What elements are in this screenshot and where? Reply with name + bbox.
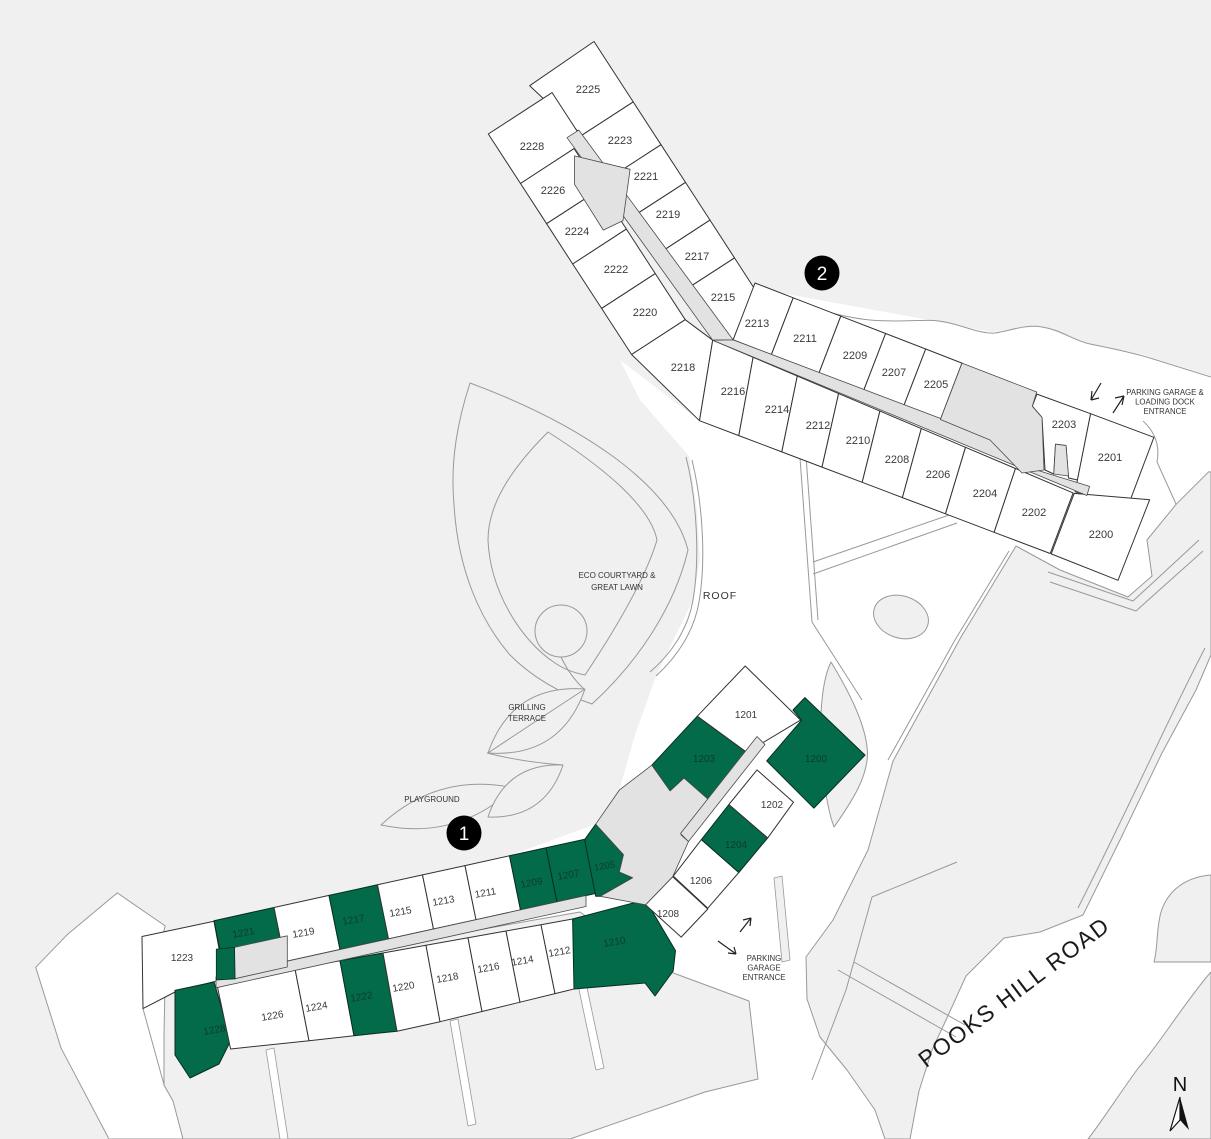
svg-text:1202: 1202 xyxy=(761,800,784,811)
svg-text:2221: 2221 xyxy=(634,171,658,183)
svg-text:2202: 2202 xyxy=(1022,507,1046,519)
svg-text:N: N xyxy=(1173,1074,1187,1096)
svg-text:2209: 2209 xyxy=(843,350,867,362)
svg-text:1206: 1206 xyxy=(690,876,713,887)
svg-text:GRILLING: GRILLING xyxy=(508,703,545,712)
svg-text:LOADING DOCK: LOADING DOCK xyxy=(1135,398,1196,407)
svg-text:1204: 1204 xyxy=(725,840,748,851)
svg-text:2204: 2204 xyxy=(973,488,997,500)
svg-text:2203: 2203 xyxy=(1052,419,1076,431)
svg-text:2211: 2211 xyxy=(793,333,817,345)
svg-text:1: 1 xyxy=(459,824,470,845)
svg-text:2208: 2208 xyxy=(885,454,909,466)
svg-text:PLAYGROUND: PLAYGROUND xyxy=(404,795,460,804)
svg-text:1223: 1223 xyxy=(171,953,194,964)
svg-text:2206: 2206 xyxy=(926,469,950,481)
svg-text:2220: 2220 xyxy=(633,307,657,319)
svg-text:2218: 2218 xyxy=(671,362,695,374)
svg-text:2214: 2214 xyxy=(765,404,789,416)
svg-text:2207: 2207 xyxy=(882,367,906,379)
svg-text:1203: 1203 xyxy=(693,754,716,765)
svg-text:2215: 2215 xyxy=(711,292,735,304)
svg-text:ROOF: ROOF xyxy=(703,590,737,602)
svg-text:GREAT LAWN: GREAT LAWN xyxy=(591,583,643,592)
svg-text:2224: 2224 xyxy=(565,226,589,238)
svg-text:ENTRANCE: ENTRANCE xyxy=(743,973,786,982)
svg-text:ECO COURTYARD &: ECO COURTYARD & xyxy=(578,571,656,580)
svg-text:PARKING GARAGE &: PARKING GARAGE & xyxy=(1126,388,1204,397)
svg-text:1200: 1200 xyxy=(805,754,828,765)
svg-text:2210: 2210 xyxy=(846,435,870,447)
svg-text:2200: 2200 xyxy=(1089,529,1113,541)
svg-text:GARAGE: GARAGE xyxy=(747,964,780,973)
svg-text:2226: 2226 xyxy=(541,185,565,197)
svg-text:2223: 2223 xyxy=(608,135,632,147)
svg-text:2216: 2216 xyxy=(721,386,745,398)
svg-text:2205: 2205 xyxy=(924,379,948,391)
svg-text:2201: 2201 xyxy=(1098,452,1122,464)
svg-text:2: 2 xyxy=(817,264,828,285)
svg-text:2225: 2225 xyxy=(576,84,600,96)
svg-text:2219: 2219 xyxy=(656,209,680,221)
svg-text:2217: 2217 xyxy=(685,251,709,263)
svg-text:TERRACE: TERRACE xyxy=(508,714,546,723)
svg-text:1208: 1208 xyxy=(657,909,680,920)
svg-text:ENTRANCE: ENTRANCE xyxy=(1144,407,1187,416)
svg-text:2213: 2213 xyxy=(745,318,769,330)
svg-text:2228: 2228 xyxy=(520,141,544,153)
svg-text:PARKING: PARKING xyxy=(747,954,782,963)
svg-text:1201: 1201 xyxy=(735,710,758,721)
svg-text:2212: 2212 xyxy=(806,420,830,432)
svg-text:2222: 2222 xyxy=(604,264,628,276)
